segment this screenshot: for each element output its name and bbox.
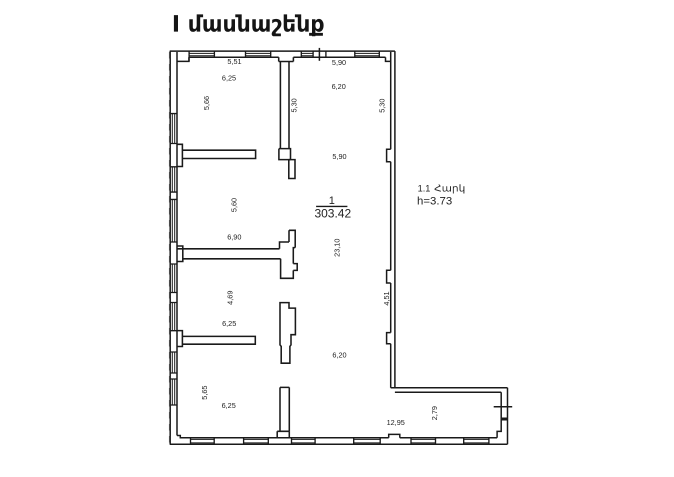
svg-text:5,66: 5,66 [202, 96, 211, 110]
svg-text:2,79: 2,79 [430, 406, 439, 420]
svg-text:6,90: 6,90 [227, 233, 241, 242]
svg-text:6,25: 6,25 [222, 319, 236, 328]
svg-text:5,90: 5,90 [332, 152, 346, 161]
svg-text:23,10: 23,10 [333, 239, 342, 257]
svg-text:h=3.73: h=3.73 [417, 195, 452, 207]
svg-text:6,20: 6,20 [332, 351, 346, 360]
svg-text:5,65: 5,65 [200, 385, 209, 399]
svg-text:1: 1 [329, 195, 335, 207]
svg-text:303.42: 303.42 [314, 206, 351, 220]
svg-text:5,60: 5,60 [230, 198, 239, 212]
svg-text:5,51: 5,51 [227, 57, 241, 66]
svg-text:6,20: 6,20 [332, 82, 346, 91]
svg-text:5,30: 5,30 [289, 98, 298, 112]
svg-text:6,25: 6,25 [222, 74, 236, 83]
svg-text:6,25: 6,25 [222, 401, 236, 410]
svg-text:4,51: 4,51 [382, 291, 391, 305]
svg-text:12,95: 12,95 [387, 418, 405, 427]
svg-text:5,90: 5,90 [332, 58, 346, 67]
svg-text:5,30: 5,30 [378, 99, 387, 113]
svg-text:1.1: 1.1 [418, 183, 431, 193]
svg-text:4,69: 4,69 [225, 291, 234, 305]
